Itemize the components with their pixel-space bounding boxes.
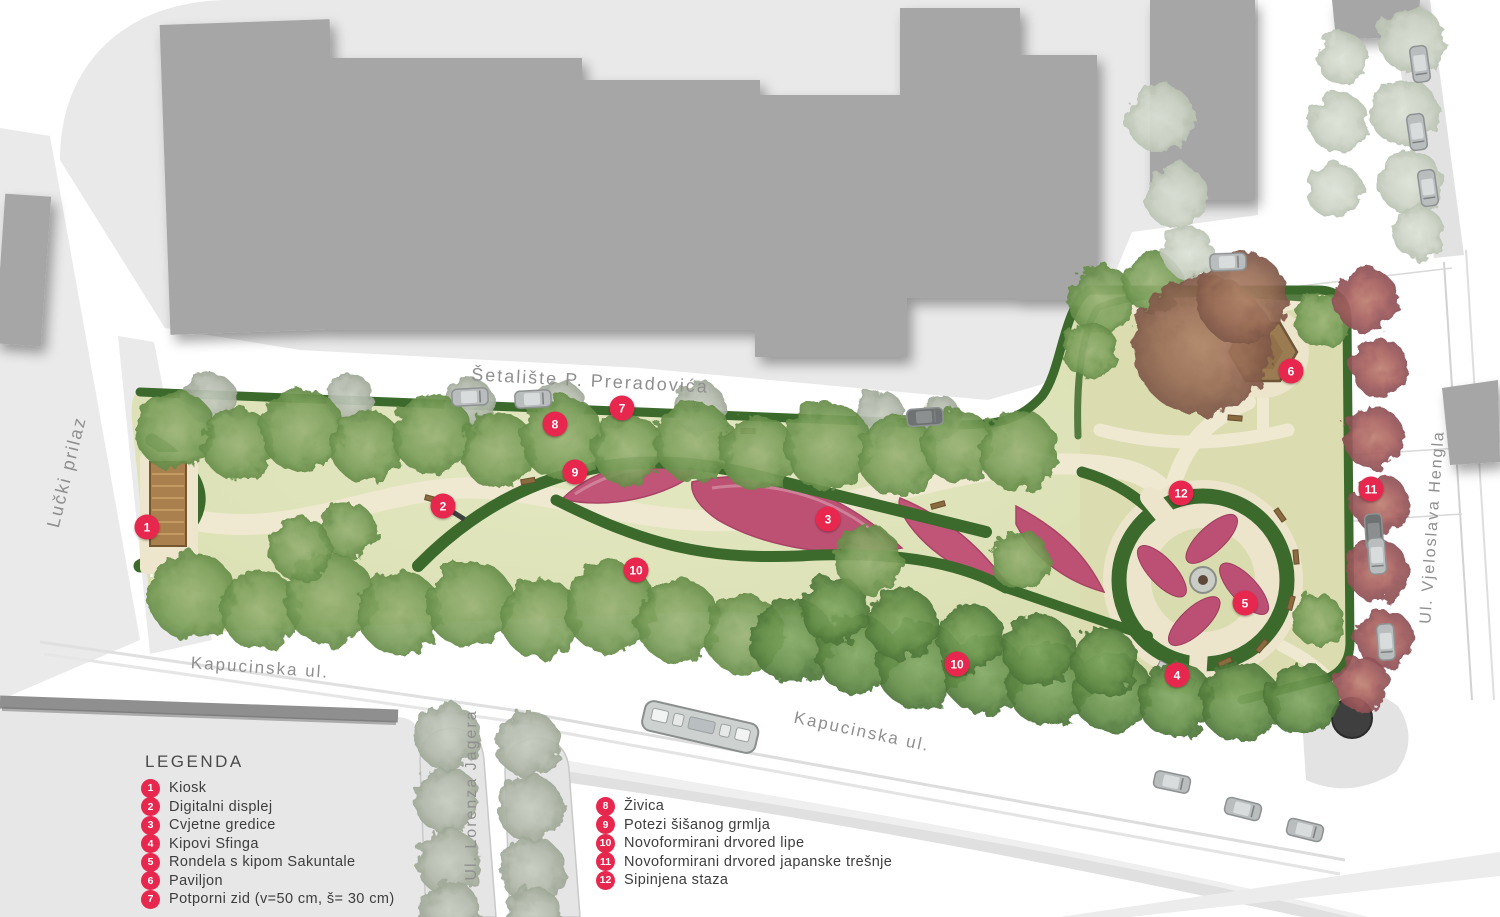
car bbox=[1153, 770, 1192, 794]
tree bbox=[1002, 614, 1074, 686]
tree bbox=[1306, 162, 1362, 218]
plan-marker-8: 8 bbox=[543, 412, 568, 437]
tree bbox=[268, 516, 332, 580]
tree bbox=[1343, 407, 1405, 469]
car bbox=[1210, 253, 1247, 271]
tree bbox=[495, 711, 561, 777]
tree bbox=[1392, 206, 1444, 258]
plan-marker-4: 4 bbox=[1165, 663, 1190, 688]
plan-marker-5: 5 bbox=[1233, 591, 1258, 616]
plan-marker-7: 7 bbox=[610, 396, 635, 421]
car bbox=[1223, 796, 1262, 821]
plan-marker-1: 1 bbox=[135, 515, 160, 540]
plan-marker-3: 3 bbox=[816, 507, 841, 532]
tree bbox=[866, 588, 938, 660]
tree bbox=[1266, 663, 1338, 735]
plan-marker-11: 11 bbox=[1359, 477, 1384, 502]
plan-marker-6: 6 bbox=[1279, 359, 1304, 384]
plan-marker-12: 12 bbox=[1169, 481, 1194, 506]
tree bbox=[1292, 594, 1344, 646]
tree bbox=[1162, 226, 1214, 278]
car bbox=[452, 388, 489, 407]
tree bbox=[1062, 322, 1118, 378]
tree bbox=[426, 560, 514, 648]
car bbox=[1367, 537, 1386, 574]
tree bbox=[1334, 268, 1398, 332]
plan-marker-2: 2 bbox=[431, 494, 456, 519]
tree bbox=[330, 410, 402, 482]
tree bbox=[990, 530, 1050, 590]
site-plan-drawing bbox=[0, 0, 1500, 917]
tree bbox=[978, 410, 1058, 490]
plan-marker-10: 10 bbox=[624, 558, 649, 583]
car bbox=[1376, 623, 1395, 660]
car bbox=[906, 407, 943, 426]
plan-marker-10: 10 bbox=[945, 652, 970, 677]
tree bbox=[1144, 164, 1208, 228]
bench bbox=[1228, 415, 1242, 421]
plan-marker-9: 9 bbox=[563, 460, 588, 485]
tree bbox=[135, 390, 215, 470]
tree bbox=[1308, 92, 1368, 152]
tree bbox=[414, 767, 480, 833]
tram bbox=[640, 699, 760, 754]
park-master-plan: Šetalište P. PreradovićaLučki prilazKapu… bbox=[0, 0, 1500, 917]
tree bbox=[1126, 84, 1194, 152]
tree bbox=[592, 414, 664, 486]
tree bbox=[520, 396, 604, 480]
car bbox=[1285, 817, 1324, 842]
tree bbox=[497, 775, 563, 841]
tree bbox=[784, 402, 872, 490]
tree bbox=[834, 526, 902, 594]
bench bbox=[1293, 550, 1299, 564]
tree bbox=[1370, 78, 1438, 146]
tree bbox=[414, 703, 480, 769]
tree bbox=[1316, 32, 1368, 84]
tree bbox=[260, 388, 344, 472]
tree bbox=[1335, 657, 1389, 711]
tree bbox=[1070, 627, 1138, 695]
tree bbox=[1351, 339, 1409, 397]
car bbox=[515, 390, 552, 409]
